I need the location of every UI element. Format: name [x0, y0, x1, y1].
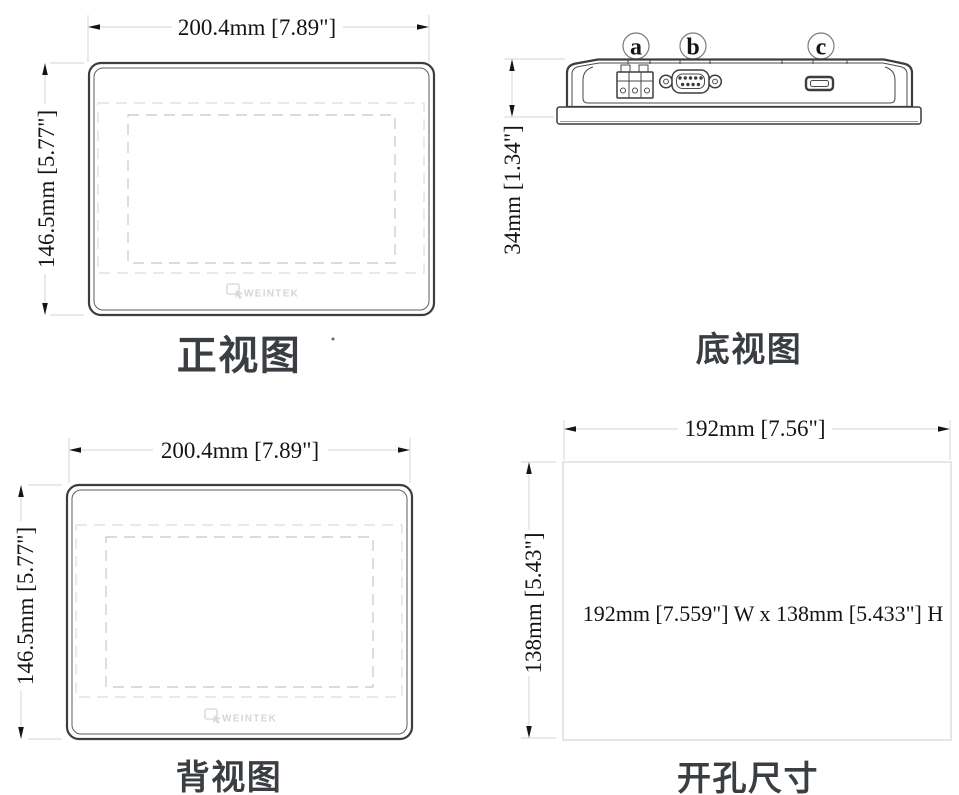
arrowhead-left — [88, 24, 100, 30]
stray-dot — [332, 338, 335, 341]
port-label-a: a — [623, 33, 649, 61]
arrowhead-left — [564, 426, 576, 432]
cutout-view-title: 开孔尺寸 — [677, 760, 819, 795]
bottom-depth-label: 34mm [1.34"] — [500, 125, 525, 255]
cutout-height-dimension: 138mm [5.43"] — [521, 462, 556, 738]
arrowhead-down — [18, 727, 24, 739]
front-height-dimension: 146.5mm [5.77"] — [34, 63, 84, 315]
arrowhead-right — [417, 24, 429, 30]
back-width-dimension: 200.4mm [7.89"] — [69, 438, 410, 483]
arrowhead-down — [42, 303, 48, 315]
arrowhead-up — [42, 63, 48, 75]
front-width-dimension: 200.4mm [7.89"] — [88, 15, 429, 62]
back-height-dimension: 146.5mm [5.77"] — [13, 485, 62, 739]
cutout-width-label: 192mm [7.56"] — [685, 416, 826, 441]
back-height-label: 146.5mm [5.77"] — [13, 527, 38, 685]
bottom-bezel-plate — [557, 107, 921, 124]
cutout-size-note: 192mm [7.559"] W x 138mm [5.433"] H — [583, 601, 944, 626]
arrowhead-down — [526, 726, 532, 738]
cutout-height-label: 138mm [5.43"] — [521, 533, 546, 674]
arrowhead-left — [69, 447, 81, 453]
front-panel-outline — [89, 63, 434, 315]
logo-wordmark: WEINTEK — [222, 714, 277, 725]
arrowhead-up — [509, 59, 514, 71]
front-view-title: 正视图 — [177, 334, 302, 378]
usb-micro-connector — [806, 77, 833, 90]
front-view: 200.4mm [7.89"] 146.5mm [5.77"] WEINTEK … — [34, 15, 434, 378]
back-width-label: 200.4mm [7.89"] — [161, 438, 319, 463]
bottom-depth-dimension: 34mm [1.34"] — [500, 59, 565, 255]
bottom-view: a b c — [500, 33, 921, 369]
balloon-letter: c — [816, 35, 827, 61]
arrowhead-right — [398, 447, 410, 453]
bottom-view-title: 底视图 — [696, 331, 803, 369]
balloon-letter: b — [686, 35, 699, 61]
balloon-letter: a — [630, 35, 642, 61]
front-height-label: 146.5mm [5.77"] — [34, 110, 59, 268]
logo-wordmark: WEINTEK — [244, 289, 299, 300]
arrowhead-up — [18, 485, 24, 497]
arrowhead-right — [938, 426, 950, 432]
arrowhead-up — [526, 462, 532, 474]
port-label-b: b — [680, 33, 706, 61]
back-view-title: 背视图 — [176, 759, 283, 795]
back-panel-outline — [67, 485, 412, 739]
cutout-view: 192mm [7.56"] 138mm [5.43"] 192mm [7.559… — [521, 416, 951, 795]
arrowhead-down — [509, 105, 514, 117]
cutout-width-dimension: 192mm [7.56"] — [564, 416, 950, 460]
port-label-c: c — [808, 33, 834, 61]
dimension-drawing-sheet: 200.4mm [7.89"] 146.5mm [5.77"] WEINTEK … — [0, 0, 959, 795]
back-view: 200.4mm [7.89"] 146.5mm [5.77"] WEINTEK … — [13, 438, 412, 795]
front-width-label: 200.4mm [7.89"] — [178, 15, 336, 40]
